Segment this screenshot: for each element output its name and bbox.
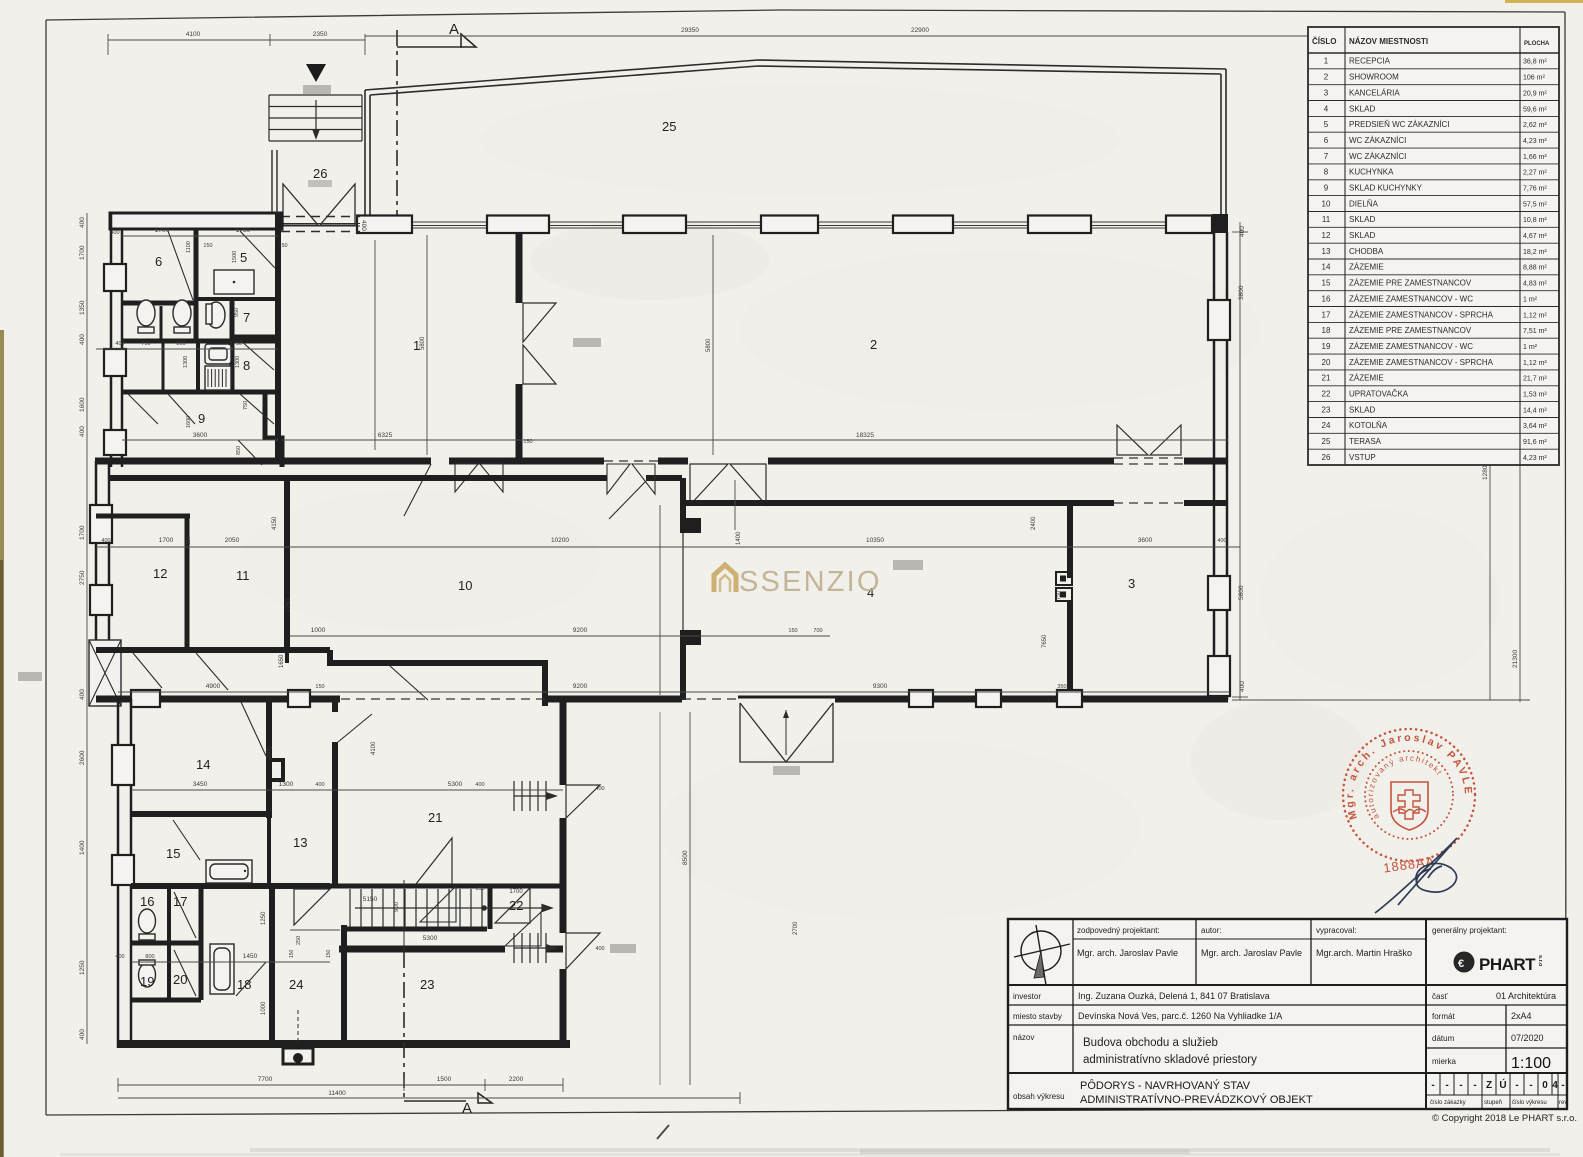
svg-text:91,6 m²: 91,6 m² <box>1523 439 1547 446</box>
svg-text:250: 250 <box>296 936 302 945</box>
svg-text:6: 6 <box>1324 136 1329 145</box>
svg-text:-: - <box>1459 1080 1462 1091</box>
svg-text:mierka: mierka <box>1432 1057 1457 1066</box>
svg-text:11: 11 <box>1322 215 1331 224</box>
svg-text:15: 15 <box>166 846 180 861</box>
svg-text:číslo výkresu: číslo výkresu <box>1512 1100 1547 1106</box>
svg-text:Mgr. arch. Jaroslav Pavle: Mgr. arch. Jaroslav Pavle <box>1201 948 1302 958</box>
svg-text:1 m²: 1 m² <box>1523 296 1538 303</box>
svg-text:24: 24 <box>1322 421 1331 430</box>
svg-text:16: 16 <box>140 894 154 909</box>
svg-text:ADMINISTRATÍVNO-PREVÁDZKOVÝ OB: ADMINISTRATÍVNO-PREVÁDZKOVÝ OBJEKT <box>1080 1093 1313 1106</box>
svg-text:administratívno skladové pries: administratívno skladové priestory <box>1083 1054 1257 1066</box>
svg-text:autor:: autor: <box>1201 926 1221 935</box>
svg-text:18,2 m²: 18,2 m² <box>1523 249 1547 256</box>
svg-text:ZÁZEMIE: ZÁZEMIE <box>1349 374 1384 383</box>
svg-text:400: 400 <box>110 230 119 236</box>
svg-text:Budova obchodu a služieb: Budova obchodu a služieb <box>1083 1037 1218 1049</box>
svg-text:-: - <box>1515 1080 1518 1091</box>
svg-text:12: 12 <box>153 566 167 581</box>
svg-text:750: 750 <box>1056 591 1062 600</box>
svg-text:ZÁZEMIE PRE ZAMESTNANCOV: ZÁZEMIE PRE ZAMESTNANCOV <box>1349 326 1472 335</box>
svg-text:Mgr.arch. Martin Hraško: Mgr.arch. Martin Hraško <box>1316 948 1412 958</box>
svg-text:CHODBA: CHODBA <box>1349 247 1384 256</box>
svg-text:5: 5 <box>240 250 247 265</box>
svg-text:1,12 m²: 1,12 m² <box>1523 360 1547 367</box>
svg-text:400: 400 <box>115 341 124 347</box>
svg-text:150: 150 <box>788 628 797 634</box>
svg-text:57,5 m²: 57,5 m² <box>1523 201 1547 208</box>
svg-text:1100: 1100 <box>186 241 192 253</box>
svg-text:2600: 2600 <box>79 750 86 765</box>
svg-text:7650: 7650 <box>1042 634 1048 648</box>
svg-text:3,64 m²: 3,64 m² <box>1523 423 1547 430</box>
svg-text:1250: 1250 <box>79 960 86 975</box>
svg-text:1,53 m²: 1,53 m² <box>1523 392 1547 399</box>
svg-text:20: 20 <box>1322 358 1331 367</box>
svg-text:číslo zákazky: číslo zákazky <box>1430 1100 1466 1106</box>
svg-text:29350: 29350 <box>681 27 699 34</box>
svg-text:ZÁZEMIE ZAMESTNANCOV - WC: ZÁZEMIE ZAMESTNANCOV - WC <box>1349 294 1473 303</box>
svg-text:150: 150 <box>315 684 324 690</box>
svg-text:400: 400 <box>1217 538 1226 544</box>
svg-text:formát: formát <box>1432 1012 1455 1021</box>
svg-text:SKLAD KUCHYNKY: SKLAD KUCHYNKY <box>1349 184 1423 193</box>
svg-text:PLOCHA: PLOCHA <box>1524 41 1550 47</box>
svg-text:800: 800 <box>176 341 185 347</box>
svg-text:6: 6 <box>155 254 162 269</box>
svg-text:PHART: PHART <box>1479 955 1536 974</box>
svg-text:1400: 1400 <box>736 531 742 545</box>
svg-text:150: 150 <box>203 243 212 249</box>
svg-text:9300: 9300 <box>873 683 888 690</box>
svg-text:400: 400 <box>360 220 367 231</box>
svg-text:3: 3 <box>1128 576 1135 591</box>
svg-text:23: 23 <box>1322 405 1331 414</box>
svg-text:Mgr. arch. Jaroslav Pavle: Mgr. arch. Jaroslav Pavle <box>1077 948 1178 958</box>
svg-text:700: 700 <box>813 628 822 634</box>
svg-text:2,62 m²: 2,62 m² <box>1523 122 1547 129</box>
svg-text:13: 13 <box>1322 247 1331 256</box>
svg-text:2350: 2350 <box>313 31 328 38</box>
svg-text:350: 350 <box>1057 684 1066 690</box>
svg-text:4,23 m²: 4,23 m² <box>1523 455 1547 462</box>
svg-text:850: 850 <box>236 446 242 455</box>
svg-text:1000: 1000 <box>261 1001 267 1015</box>
svg-text:5150: 5150 <box>363 896 378 903</box>
svg-text:1600: 1600 <box>79 397 86 412</box>
svg-text:400: 400 <box>79 426 86 437</box>
svg-text:26: 26 <box>1322 453 1331 462</box>
svg-text:7700: 7700 <box>258 1076 273 1083</box>
svg-text:18: 18 <box>1322 326 1331 335</box>
svg-text:SKLAD: SKLAD <box>1349 215 1375 224</box>
svg-text:59,6 m²: 59,6 m² <box>1523 106 1547 113</box>
svg-text:13: 13 <box>293 835 307 850</box>
svg-text:400: 400 <box>1239 681 1246 692</box>
svg-text:KOTOLŇA: KOTOLŇA <box>1349 421 1388 430</box>
svg-text:-: - <box>1561 1080 1564 1091</box>
svg-text:1300: 1300 <box>183 356 189 368</box>
svg-text:1250: 1250 <box>261 911 267 925</box>
svg-text:400: 400 <box>475 782 484 788</box>
svg-text:vypracoval:: vypracoval: <box>1316 926 1356 935</box>
svg-text:20,9 m²: 20,9 m² <box>1523 90 1547 97</box>
svg-text:400: 400 <box>79 1029 86 1040</box>
svg-text:A: A <box>449 21 459 38</box>
svg-text:1500: 1500 <box>437 1076 452 1083</box>
svg-text:16: 16 <box>1322 294 1331 303</box>
svg-text:150: 150 <box>186 536 192 545</box>
svg-text:400: 400 <box>1239 226 1246 237</box>
svg-text:18: 18 <box>237 977 251 992</box>
svg-text:1: 1 <box>1324 57 1329 66</box>
svg-text:DIELŇA: DIELŇA <box>1349 199 1379 208</box>
svg-text:400: 400 <box>79 689 86 700</box>
svg-text:-: - <box>1473 1080 1476 1091</box>
svg-text:1700: 1700 <box>79 245 86 260</box>
svg-text:1,66 m²: 1,66 m² <box>1523 154 1547 161</box>
svg-text:miesto stavby: miesto stavby <box>1013 1012 1062 1021</box>
svg-text:750: 750 <box>243 401 249 410</box>
svg-text:18325: 18325 <box>856 432 874 439</box>
svg-text:12: 12 <box>1322 231 1331 240</box>
svg-text:1500: 1500 <box>232 251 238 263</box>
svg-text:KANCELÁRIA: KANCELÁRIA <box>1349 88 1400 97</box>
svg-text:SKLAD: SKLAD <box>1349 104 1375 113</box>
svg-text:2,27 m²: 2,27 m² <box>1523 170 1547 177</box>
svg-text:2600: 2600 <box>267 746 273 760</box>
svg-text:9: 9 <box>198 411 205 426</box>
svg-text:19: 19 <box>1322 342 1331 351</box>
svg-text:950: 950 <box>234 308 240 317</box>
svg-text:07/2020: 07/2020 <box>1511 1033 1544 1043</box>
svg-text:5300: 5300 <box>448 781 463 788</box>
svg-text:1400: 1400 <box>79 840 86 855</box>
svg-text:4,83 m²: 4,83 m² <box>1523 281 1547 288</box>
svg-text:5: 5 <box>1324 120 1329 129</box>
svg-text:8: 8 <box>1324 168 1329 177</box>
svg-text:4: 4 <box>1324 104 1329 113</box>
svg-text:2: 2 <box>870 337 877 352</box>
svg-text:ZÁZEMIE PRE ZAMESTNANCOV: ZÁZEMIE PRE ZAMESTNANCOV <box>1349 279 1472 288</box>
svg-text:23: 23 <box>420 977 434 992</box>
svg-text:17: 17 <box>1322 310 1331 319</box>
svg-text:7: 7 <box>243 310 250 325</box>
svg-text:1300: 1300 <box>279 781 294 788</box>
svg-text:4150: 4150 <box>272 516 278 530</box>
svg-text:5800: 5800 <box>1238 585 1245 600</box>
svg-text:25: 25 <box>1322 437 1331 446</box>
svg-text:5300: 5300 <box>423 935 438 942</box>
svg-text:2750: 2750 <box>79 570 86 585</box>
svg-text:2200: 2200 <box>509 1076 524 1083</box>
svg-text:15: 15 <box>1322 279 1331 288</box>
svg-text:SHOWROOM: SHOWROOM <box>1349 73 1399 82</box>
svg-text:SKLAD: SKLAD <box>1349 231 1375 240</box>
svg-text:1700: 1700 <box>509 889 523 895</box>
svg-text:ZÁZEMIE: ZÁZEMIE <box>1349 263 1384 272</box>
svg-text:9200: 9200 <box>573 683 588 690</box>
svg-text:4900: 4900 <box>206 683 221 690</box>
svg-text:3800: 3800 <box>1238 285 1245 300</box>
svg-text:2400: 2400 <box>1031 516 1037 530</box>
svg-text:2700: 2700 <box>793 921 799 935</box>
svg-text:10200: 10200 <box>551 537 569 544</box>
svg-text:© Copyright 2018 Le PHART s.r.: © Copyright 2018 Le PHART s.r.o. <box>1432 1113 1577 1124</box>
svg-text:150: 150 <box>475 886 484 892</box>
svg-text:10: 10 <box>458 578 472 593</box>
svg-text:SKLAD: SKLAD <box>1349 405 1375 414</box>
svg-text:Ú: Ú <box>1499 1078 1506 1091</box>
svg-text:400: 400 <box>315 782 324 788</box>
svg-text:400: 400 <box>79 217 86 228</box>
svg-text:zodpovedný projektant:: zodpovedný projektant: <box>1077 926 1160 935</box>
svg-text:1700: 1700 <box>159 537 174 544</box>
svg-text:-: - <box>1431 1080 1434 1091</box>
svg-text:400: 400 <box>101 538 110 544</box>
svg-text:1350: 1350 <box>79 300 86 315</box>
svg-text:36,8 m²: 36,8 m² <box>1523 59 1547 66</box>
svg-text:1700: 1700 <box>79 525 86 540</box>
svg-text:ZÁZEMIE ZAMESTNANCOV - SPRCHA: ZÁZEMIE ZAMESTNANCOV - SPRCHA <box>1349 310 1494 319</box>
svg-text:21,7 m²: 21,7 m² <box>1523 376 1547 383</box>
svg-text:Ing. Zuzana Ouzká, Delená 1, 8: Ing. Zuzana Ouzká, Delená 1, 841 07 Brat… <box>1078 991 1270 1001</box>
svg-text:A: A <box>462 1100 472 1117</box>
svg-text:9: 9 <box>1324 184 1329 193</box>
svg-text:€: € <box>1458 958 1464 970</box>
svg-text:4,67 m²: 4,67 m² <box>1523 233 1547 240</box>
svg-text:26: 26 <box>313 166 327 181</box>
svg-text:1450: 1450 <box>243 953 258 960</box>
svg-text:2xA4: 2xA4 <box>1511 1011 1532 1021</box>
svg-text:11400: 11400 <box>328 1090 346 1097</box>
svg-text:6325: 6325 <box>378 432 393 439</box>
svg-text:9200: 9200 <box>573 627 588 634</box>
svg-text:10350: 10350 <box>866 537 884 544</box>
svg-text:25: 25 <box>662 119 676 134</box>
svg-text:24: 24 <box>289 977 303 992</box>
svg-text:150: 150 <box>326 949 332 958</box>
svg-text:názov: názov <box>1013 1033 1034 1042</box>
svg-text:Z: Z <box>1486 1080 1492 1091</box>
svg-text:8: 8 <box>243 358 250 373</box>
svg-text:s.r.o: s.r.o <box>1537 955 1543 967</box>
svg-text:obsah výkresu: obsah výkresu <box>1013 1092 1065 1101</box>
svg-text:3450: 3450 <box>193 781 208 788</box>
svg-text:SSENZIO: SSENZIO <box>739 566 882 598</box>
svg-text:VSTUP: VSTUP <box>1349 453 1376 462</box>
svg-text:400: 400 <box>115 954 124 960</box>
svg-text:3600: 3600 <box>1138 537 1153 544</box>
svg-text:2: 2 <box>1324 73 1329 82</box>
svg-text:400: 400 <box>595 946 604 952</box>
svg-text:400: 400 <box>595 786 604 792</box>
svg-text:1 m²: 1 m² <box>1523 344 1538 351</box>
svg-text:dátum: dátum <box>1432 1034 1455 1043</box>
svg-text:1300: 1300 <box>235 356 241 368</box>
svg-text:7,76 m²: 7,76 m² <box>1523 186 1547 193</box>
svg-text:14,4 m²: 14,4 m² <box>1523 407 1547 414</box>
svg-text:ZÁZEMIE ZAMESTNANCOV - WC: ZÁZEMIE ZAMESTNANCOV - WC <box>1349 342 1473 351</box>
svg-text:ČÍSLO: ČÍSLO <box>1312 37 1336 46</box>
svg-text:5800: 5800 <box>706 338 712 352</box>
svg-text:časť: časť <box>1432 992 1448 1001</box>
svg-text:8,88 m²: 8,88 m² <box>1523 265 1547 272</box>
svg-text:10,8 m²: 10,8 m² <box>1523 217 1547 224</box>
svg-text:22: 22 <box>509 898 523 913</box>
svg-text:5800: 5800 <box>420 336 426 350</box>
svg-text:20: 20 <box>173 972 187 987</box>
svg-text:01 Architektúra: 01 Architektúra <box>1496 991 1556 1001</box>
svg-text:150: 150 <box>523 439 532 445</box>
svg-text:1650: 1650 <box>279 654 285 668</box>
svg-text:750: 750 <box>141 341 150 347</box>
svg-text:4,23 m²: 4,23 m² <box>1523 138 1547 145</box>
svg-text:150: 150 <box>289 949 295 958</box>
svg-text:19: 19 <box>140 974 154 989</box>
svg-text:NÁZOV MIESTNOSTI: NÁZOV MIESTNOSTI <box>1349 37 1428 46</box>
svg-text:1:100: 1:100 <box>1511 1055 1551 1072</box>
svg-text:2050: 2050 <box>225 537 240 544</box>
svg-text:1600: 1600 <box>186 416 192 428</box>
svg-text:2750: 2750 <box>286 598 292 612</box>
svg-text:21300: 21300 <box>1512 650 1519 668</box>
svg-text:10: 10 <box>1322 199 1331 208</box>
svg-text:1750: 1750 <box>230 341 242 347</box>
svg-text:UPRATOVAČKA: UPRATOVAČKA <box>1349 390 1409 399</box>
svg-text:ZÁZEMIE ZAMESTNANCOV - SPRCHA: ZÁZEMIE ZAMESTNANCOV - SPRCHA <box>1349 358 1494 367</box>
svg-text:21: 21 <box>428 810 442 825</box>
svg-text:1,12 m²: 1,12 m² <box>1523 312 1547 319</box>
svg-text:11: 11 <box>236 568 250 583</box>
svg-text:900: 900 <box>394 901 400 912</box>
svg-text:generálny projektant:: generálny projektant: <box>1432 926 1507 935</box>
svg-text:1750: 1750 <box>236 227 251 234</box>
svg-text:3600: 3600 <box>193 432 208 439</box>
svg-text:14: 14 <box>1322 263 1331 272</box>
svg-text:22900: 22900 <box>911 27 929 34</box>
svg-text:RECEPCIA: RECEPCIA <box>1349 57 1391 66</box>
svg-text:800: 800 <box>145 954 154 960</box>
svg-text:-: - <box>1445 1080 1448 1091</box>
svg-text:TERASA: TERASA <box>1349 437 1382 446</box>
svg-text:17: 17 <box>173 894 187 909</box>
svg-text:stupeň: stupeň <box>1484 1100 1502 1106</box>
svg-text:22: 22 <box>1322 390 1331 399</box>
svg-text:investor: investor <box>1013 992 1041 1001</box>
svg-text:14: 14 <box>196 757 210 772</box>
svg-text:Devínska Nová Ves, parc.č. 126: Devínska Nová Ves, parc.č. 1260 Na Vyhli… <box>1078 1011 1282 1021</box>
svg-text:150: 150 <box>278 243 287 249</box>
svg-text:WC ZÁKAZNÍCI: WC ZÁKAZNÍCI <box>1349 136 1406 145</box>
svg-text:4100: 4100 <box>371 741 377 755</box>
svg-text:WC ZÁKAZNÍCI: WC ZÁKAZNÍCI <box>1349 152 1406 161</box>
svg-text:7,51 m²: 7,51 m² <box>1523 328 1547 335</box>
svg-text:7: 7 <box>1324 152 1329 161</box>
svg-text:KUCHYNKA: KUCHYNKA <box>1349 168 1394 177</box>
svg-text:4100: 4100 <box>186 31 201 38</box>
svg-text:21: 21 <box>1322 374 1331 383</box>
svg-text:PREDSIEŇ WC ZÁKAZNÍCI: PREDSIEŇ WC ZÁKAZNÍCI <box>1349 120 1449 129</box>
svg-text:PÔDORYS - NAVRHOVANÝ STAV: PÔDORYS - NAVRHOVANÝ STAV <box>1080 1079 1251 1092</box>
svg-text:400: 400 <box>79 334 86 345</box>
svg-text:4: 4 <box>1552 1080 1558 1091</box>
svg-text:1700: 1700 <box>155 227 170 234</box>
svg-text:0: 0 <box>1542 1080 1548 1091</box>
svg-text:106 m²: 106 m² <box>1523 75 1545 82</box>
svg-text:1000: 1000 <box>311 627 326 634</box>
svg-text:-: - <box>1529 1080 1532 1091</box>
svg-text:8500: 8500 <box>682 850 689 865</box>
svg-text:3: 3 <box>1324 88 1329 97</box>
svg-text:rev: rev <box>1559 1100 1567 1106</box>
